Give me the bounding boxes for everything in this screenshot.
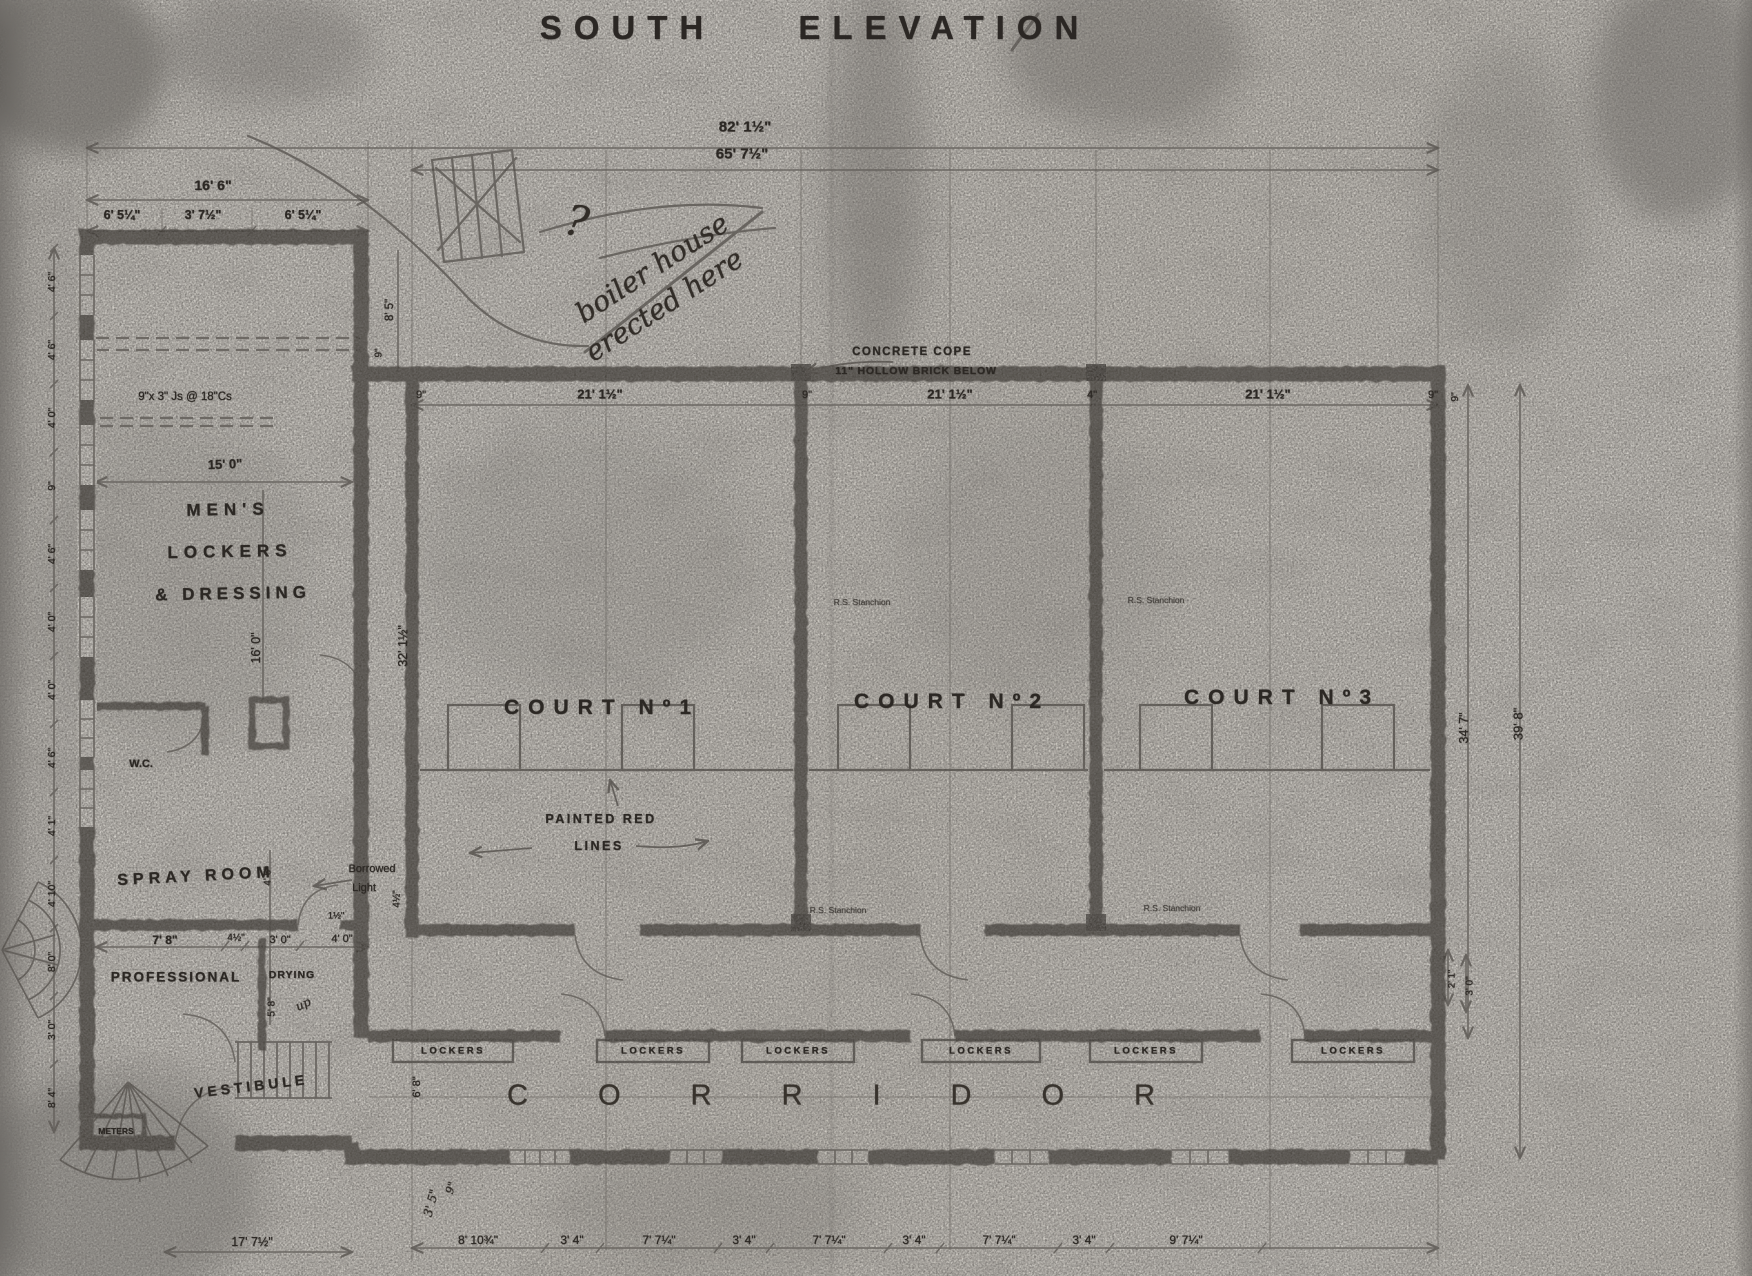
- room-label-meters: METERS: [98, 1126, 133, 1136]
- dim-bottom-7: 7' 7¼": [982, 1233, 1015, 1247]
- dim-bottom-1: 8' 10¾": [458, 1233, 498, 1247]
- dim-court-top-6: 21' 1½": [1245, 387, 1290, 402]
- borrowed-light-note-1: Borrowed: [348, 863, 395, 875]
- dim-court-top-7: 9": [1428, 389, 1438, 401]
- borrowed-light-note-2: Light: [352, 882, 376, 894]
- room-label-mens-2: LOCKERS: [167, 541, 292, 563]
- locker-boxes: [393, 1040, 1414, 1062]
- dim-left-chain-10: 4' 10": [46, 881, 58, 907]
- room-label-drying: DRYING: [269, 969, 315, 981]
- concrete-cope-note-1: CONCRETE COPE: [852, 346, 972, 358]
- locker-label-6: LOCKERS: [1321, 1046, 1385, 1057]
- painted-red-note-2: LINES: [574, 839, 623, 853]
- locker-label-4: LOCKERS: [949, 1046, 1013, 1057]
- dim-court-top-3: 9": [802, 389, 812, 401]
- dim-6-8-vert: 6' 8": [411, 1076, 423, 1097]
- dim-left-chain-13: 8' 4": [46, 1088, 58, 1108]
- stanchion-note-3: R.S. Stanchion: [810, 905, 867, 915]
- stanchion-note-2: R.S. Stanchion: [1128, 595, 1185, 605]
- dim-right-34-7: 34' 7": [1457, 712, 1471, 743]
- dim-4half-vert: 4½": [392, 890, 403, 907]
- room-label-court-1: COURT Nº1: [504, 696, 700, 720]
- room-label-court-2: COURT Nº2: [854, 690, 1050, 714]
- dim-court-top-4: 21' 1½": [927, 387, 972, 402]
- room-label-corridor: CORRIDOR: [507, 1080, 1225, 1113]
- dim-wing-width: 15' 0": [207, 456, 242, 472]
- dim-left-chain-3: 4' 0": [46, 408, 58, 428]
- dim-left-chain-8: 4' 6": [46, 748, 58, 768]
- dim-courts-span: 65' 7½": [716, 146, 768, 163]
- dim-left-chain-5: 4' 6": [46, 544, 58, 564]
- locker-label-3: LOCKERS: [766, 1046, 830, 1057]
- stanchion-squares: [791, 364, 1106, 931]
- dim-wing-part-2: 3' 7½": [185, 208, 222, 222]
- dim-wing-part-3: 6' 5¼": [285, 208, 322, 222]
- dim-spray-1: 7' 8": [152, 933, 177, 947]
- stanchion-note-1: R.S. Stanchion: [834, 597, 891, 607]
- dim-left-chain-9: 4' 1": [46, 816, 58, 836]
- door-arcs: [167, 655, 1305, 1143]
- dim-bottom-left: 17' 7½": [231, 1235, 273, 1249]
- room-label-mens-1: MEN'S: [186, 499, 270, 520]
- dim-wing-part-1: 6' 5¼": [104, 208, 141, 222]
- blueprint-sheet: SOUTH ELEVATION 82' 1½" 65' 7½" 16' 6" 6…: [0, 0, 1752, 1276]
- dim-left-chain-4: 9": [46, 481, 58, 491]
- dim-right-9: 9": [1449, 392, 1461, 402]
- dim-bottom-8: 3' 4": [1072, 1233, 1095, 1247]
- dim-left-chain-2: 4' 6": [46, 340, 58, 360]
- drawing-title: SOUTH ELEVATION: [540, 9, 1091, 47]
- room-label-mens-3: & DRESSING: [155, 583, 311, 606]
- dim-right-3-0: 3' 0": [1465, 976, 1476, 995]
- dim-left-chain-7: 4' 0": [46, 680, 58, 700]
- dim-right-2-1: 2' 1": [1447, 970, 1458, 988]
- dim-court-top-1: 9": [416, 389, 426, 401]
- locker-label-2: LOCKERS: [621, 1046, 685, 1057]
- locker-label-5: LOCKERS: [1114, 1046, 1178, 1057]
- dim-1-5: 1½": [328, 911, 345, 922]
- dim-spray-3: 3' 0": [269, 934, 290, 946]
- room-label-professional: PROFESSIONAL: [111, 970, 242, 985]
- dim-bottom-2: 3' 4": [560, 1233, 583, 1247]
- dim-spray-4: 4' 0": [331, 933, 352, 945]
- dim-left-chain-12: 3' 0": [46, 1020, 58, 1040]
- stanchion-note-4: R.S. Stanchion: [1144, 903, 1201, 913]
- room-label-wc: W.C.: [129, 758, 153, 770]
- dim-court-top-5: 4": [1087, 389, 1097, 401]
- dim-spray-2: 4½": [227, 933, 244, 944]
- locker-label-1: LOCKERS: [421, 1046, 485, 1057]
- dim-court-height: 32' 1½": [396, 625, 410, 667]
- dim-bottom-4: 3' 4": [732, 1233, 755, 1247]
- dim-wing: 16' 6": [194, 177, 231, 193]
- dim-9-top: 9": [374, 348, 385, 357]
- dim-bottom-6: 3' 4": [902, 1233, 925, 1247]
- dim-bottom-5: 7' 7¼": [812, 1233, 845, 1247]
- joists-note: 9"x 3" Js @ 18"Cs: [138, 391, 232, 403]
- dim-left-chain-1: 4' 6": [46, 272, 58, 292]
- dim-wing-height: 16' 0": [249, 632, 263, 663]
- dim-overall: 82' 1½": [719, 119, 771, 136]
- dim-court-top-2: 21' 1½": [577, 387, 622, 402]
- dim-8-5: 8' 5": [384, 299, 396, 321]
- joist-lines: [96, 338, 360, 426]
- dim-left-chain-6: 4' 0": [46, 612, 58, 632]
- dim-bottom-3: 7' 7¼": [642, 1233, 675, 1247]
- dim-5-8-vert: 5' 8": [267, 997, 278, 1016]
- room-label-court-3: COURT Nº3: [1184, 686, 1380, 710]
- dim-4-6-vert: 4' 6": [263, 866, 274, 885]
- dim-bottom-9: 9' 7¼": [1169, 1233, 1202, 1247]
- painted-red-note-1: PAINTED RED: [545, 812, 656, 826]
- dim-right-39-8: 39' 8": [1511, 708, 1526, 740]
- dim-left-chain-11: 8' 0": [46, 952, 58, 972]
- concrete-cope-note-2: 11" HOLLOW BRICK BELOW: [835, 365, 996, 377]
